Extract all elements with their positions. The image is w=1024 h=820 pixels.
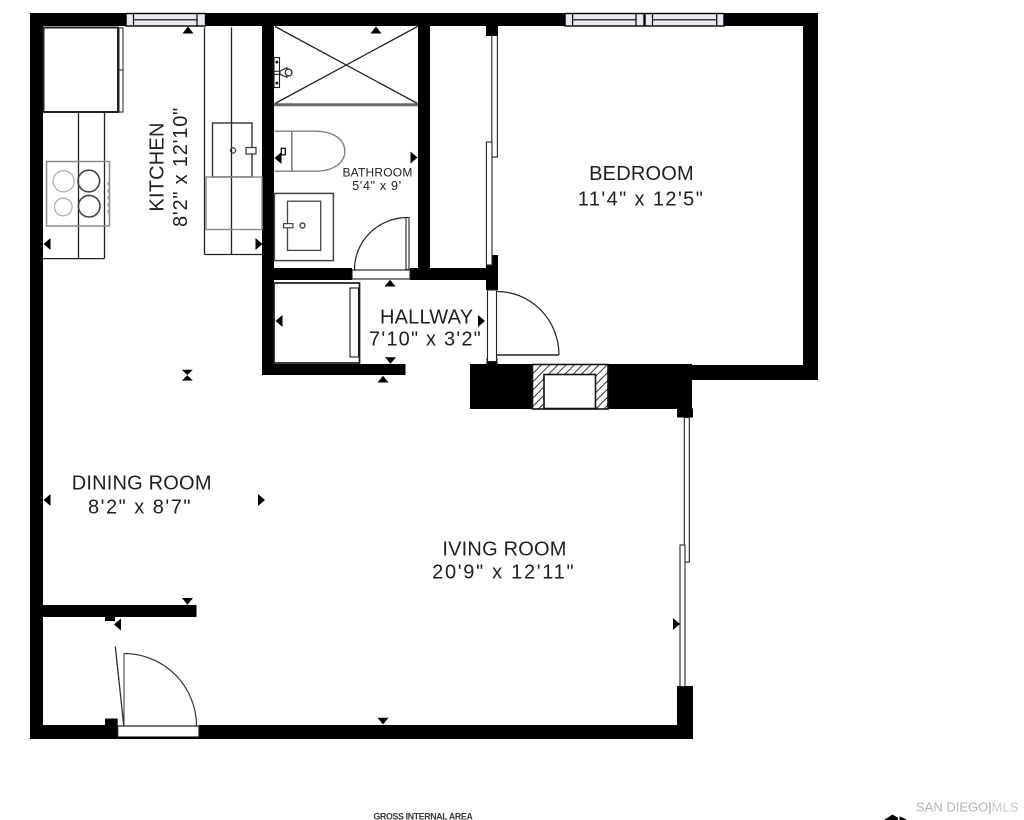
- svg-text:BATHROOM: BATHROOM: [342, 166, 412, 180]
- svg-text:KITCHEN: KITCHEN: [147, 122, 169, 211]
- svg-text:HALLWAY: HALLWAY: [380, 307, 473, 329]
- svg-text:BEDROOM: BEDROOM: [589, 163, 694, 185]
- svg-text:8'2" x 8'7": 8'2" x 8'7": [88, 497, 192, 519]
- svg-text:8'2" x 12'10": 8'2" x 12'10": [170, 107, 192, 227]
- svg-text:20'9" x 12'11": 20'9" x 12'11": [432, 562, 575, 584]
- svg-text:DINING ROOM: DINING ROOM: [72, 473, 212, 495]
- svg-text:SAN DIEGO|MLS: SAN DIEGO|MLS: [916, 800, 1019, 815]
- svg-text:7'10" x 3'2": 7'10" x 3'2": [369, 329, 482, 351]
- svg-text:IVING ROOM: IVING ROOM: [442, 539, 566, 561]
- svg-text:5'4" x 9': 5'4" x 9': [352, 179, 402, 193]
- svg-text:GROSS INTERNAL AREA: GROSS INTERNAL AREA: [374, 811, 474, 820]
- svg-text:11'4" x 12'5": 11'4" x 12'5": [578, 189, 704, 211]
